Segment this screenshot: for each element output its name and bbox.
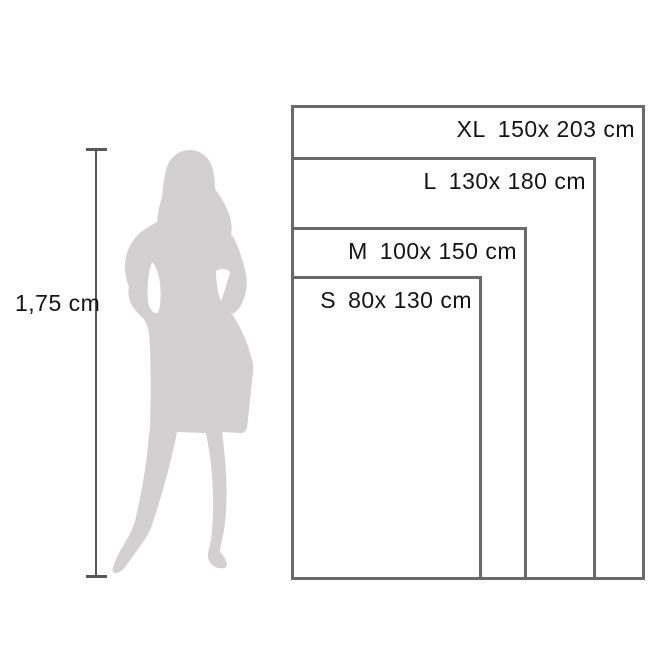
size-label-xl: XL150x 203 cm	[457, 117, 635, 142]
size-dims-l: 130x 180 cm	[449, 168, 586, 194]
size-chart-diagram: 1,75 cm XL150x 203 cm L130x 180 cm M100x…	[0, 0, 665, 665]
size-label-m: M100x 150 cm	[348, 239, 517, 264]
size-dims-s: 80x 130 cm	[348, 287, 472, 313]
woman-silhouette	[110, 145, 270, 580]
size-dims-xl: 150x 203 cm	[498, 116, 635, 142]
height-measure-line	[86, 148, 107, 578]
measure-cap-bottom	[86, 575, 107, 578]
height-label: 1,75 cm	[15, 292, 100, 315]
size-code-l: L	[424, 169, 437, 194]
size-code-m: M	[348, 239, 368, 264]
size-code-s: S	[320, 288, 336, 313]
woman-silhouette-shape	[113, 150, 254, 573]
measure-line	[95, 148, 97, 578]
size-dims-m: 100x 150 cm	[380, 238, 517, 264]
size-box-s: S80x 130 cm	[291, 276, 482, 580]
size-label-s: S80x 130 cm	[320, 288, 472, 313]
size-code-xl: XL	[457, 117, 486, 142]
size-label-l: L130x 180 cm	[424, 169, 587, 194]
